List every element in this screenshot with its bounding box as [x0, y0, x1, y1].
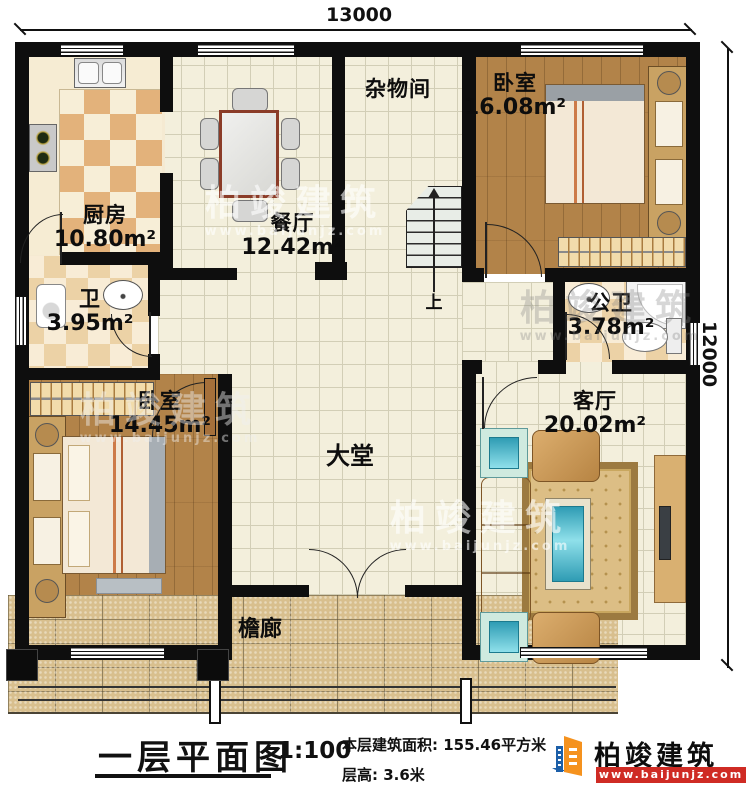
living-label: 客厅 20.02m² [530, 390, 660, 438]
brand-url-bar: www.baijunjz.com [596, 767, 746, 783]
wall-hall-living [462, 361, 476, 660]
nightstand-deco [657, 211, 681, 235]
porch-step-line-2 [18, 699, 616, 701]
porch-column-left [6, 649, 38, 681]
porch-post-right [460, 678, 472, 724]
bedroom-top-name: 卧室 [455, 72, 575, 96]
bed-foot-blanket [149, 437, 165, 573]
nightstand-panel [655, 159, 683, 205]
public-bath-toilet-tank [666, 318, 682, 354]
floor-area-label: 本层建筑面积: [342, 736, 438, 754]
brand-logo-icon [542, 730, 590, 790]
bedroom-left-window [70, 647, 165, 658]
wall-kitchen-dining-a [160, 42, 173, 112]
side-table-glass [489, 621, 519, 653]
living-area: 20.02m² [530, 414, 660, 439]
nightstand-panel [33, 517, 61, 565]
plan-title: 一层平面图 [98, 730, 293, 779]
hall-label: 大堂 [305, 443, 395, 470]
wall-bath-right-a [148, 252, 160, 316]
bedroom-top-door-leaf [485, 222, 487, 278]
dining-chair-right-2 [281, 158, 300, 190]
bedroom-top-wardrobe [558, 237, 686, 267]
wall-left [15, 42, 29, 660]
public-bath-name: 公卫 [556, 292, 666, 316]
public-bath-area: 3.78m² [556, 316, 666, 341]
bath-door-leaf [149, 312, 151, 356]
wall-living-top-c [612, 360, 700, 374]
living-door-leaf [482, 377, 484, 429]
kitchen-area: 10.80m² [45, 228, 165, 253]
bath-name: 卫 [35, 288, 145, 312]
dining-chair-left-2 [200, 158, 219, 190]
bed-pillow [68, 445, 90, 501]
bedroom-top-window [520, 44, 644, 55]
bedroom-left-nightstand-strip [26, 416, 66, 618]
brand-url: www.baijunjz.com [599, 768, 743, 781]
dining-area: 12.42m² [235, 236, 350, 261]
kitchen-label: 厨房 10.80m² [45, 204, 165, 252]
dining-chair-left-1 [200, 118, 219, 150]
porch-post-left [209, 678, 221, 724]
floor-height-value: 3.6米 [383, 766, 425, 784]
bedroom-top-nightstand-strip [648, 66, 688, 240]
bed-stripe [113, 437, 116, 573]
sink-basin-right [102, 62, 123, 84]
kitchen-stove [29, 124, 57, 172]
sink-basin-left [78, 62, 99, 84]
floor-height-line: 层高: 3.6米 [342, 764, 425, 785]
storage-name: 杂物间 [338, 78, 458, 102]
wall-entrance-left [225, 585, 309, 597]
living-side-table-top [480, 428, 528, 478]
living-coffee-table [545, 498, 591, 590]
bedroom-top-label: 卧室 16.08m² [455, 72, 575, 120]
living-tv-cabinet [654, 455, 686, 603]
plan-scale: 1:100 [278, 738, 351, 764]
dimension-top-value: 13000 [326, 4, 392, 26]
dimension-right-value: 12000 [698, 321, 720, 385]
dining-table [219, 110, 279, 198]
bath-label: 卫 3.95m² [35, 288, 145, 336]
plan-title-underline [95, 774, 271, 778]
floor-area-value: 155.46平方米 [443, 736, 546, 754]
bedroom-left-bed [62, 436, 166, 574]
bed-pillow [68, 511, 90, 567]
wall-bath-bottom [15, 368, 160, 380]
bed-stripe [582, 101, 584, 203]
wall-entrance-right [405, 585, 467, 597]
living-name: 客厅 [530, 390, 660, 414]
storage-label: 杂物间 [338, 78, 458, 102]
wall-bedroom-top-bottom-b [545, 268, 700, 282]
kitchen-name: 厨房 [45, 204, 165, 228]
bed-stripe [121, 437, 123, 573]
stairs-arrow-line [433, 194, 435, 292]
floor-height-label: 层高: [342, 766, 378, 784]
nightstand-panel [33, 453, 61, 501]
coffee-table-glass [552, 506, 584, 582]
floor-plan-page: 上 [0, 0, 750, 798]
living-window [520, 647, 648, 658]
nightstand-panel [655, 101, 683, 147]
living-sofa-main [481, 477, 531, 623]
tv-screen [659, 506, 671, 560]
dining-name: 餐厅 [235, 212, 350, 236]
stairs-up-label: 上 [418, 294, 450, 313]
wall-bedroom-top-bottom-a [462, 268, 484, 282]
dining-window [197, 44, 295, 55]
nightstand-deco [657, 71, 681, 95]
porch-label: 檐廊 [215, 618, 305, 643]
nightstand-deco [35, 423, 59, 447]
dining-chair-right-1 [281, 118, 300, 150]
wall-dining-bottom [160, 268, 237, 280]
public-bath-label: 公卫 3.78m² [556, 292, 666, 340]
dining-label: 餐厅 12.42m² [235, 212, 350, 260]
wall-living-top-b [538, 360, 566, 374]
wall-living-top-a [462, 360, 482, 374]
bedroom-left-bench [96, 578, 162, 594]
porch-column-mid [197, 649, 229, 681]
dining-chair-top [232, 88, 268, 112]
bedroom-left-area: 14.45m² [100, 414, 220, 439]
bedroom-left-name: 卧室 [100, 390, 220, 414]
floor-area-line: 本层建筑面积: 155.46平方米 [342, 734, 546, 755]
kitchen-sink [74, 58, 126, 88]
porch-step-line-1 [18, 686, 616, 688]
nightstand-deco [35, 579, 59, 603]
stairs-arrow-head [428, 188, 440, 198]
bedroom-top-area: 16.08m² [455, 96, 575, 121]
dimension-line-right [727, 48, 729, 668]
footer: 一层平面图 1:100 本层建筑面积: 155.46平方米 层高: 3.6米 柏… [0, 722, 750, 798]
bath-area: 3.95m² [35, 312, 145, 337]
side-table-glass [489, 437, 519, 469]
bath-window [15, 296, 26, 346]
kitchen-window [60, 44, 124, 55]
bedroom-left-label: 卧室 14.45m² [100, 390, 220, 438]
dimension-line-top [20, 29, 692, 31]
hall-lobby-floor [462, 282, 558, 362]
